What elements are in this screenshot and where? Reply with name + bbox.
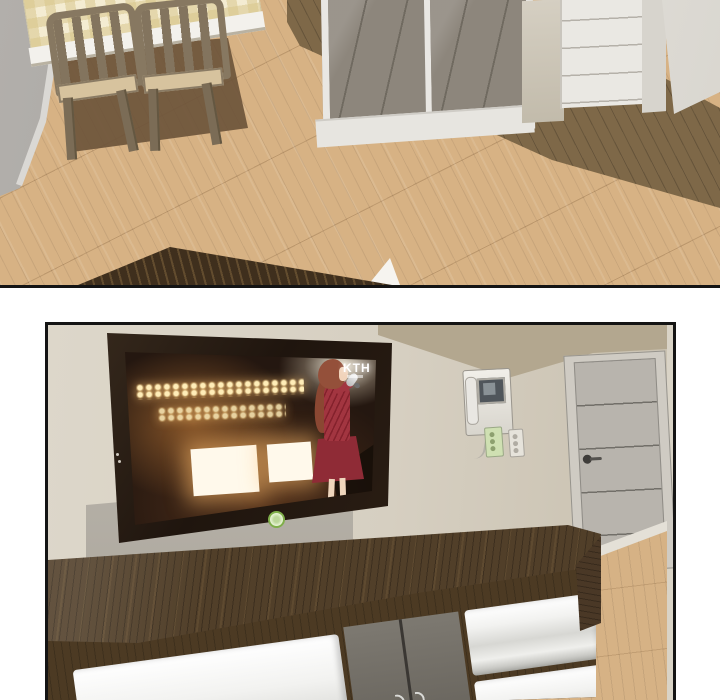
intercom-screen-glass bbox=[483, 383, 496, 396]
intercom-screen bbox=[477, 377, 506, 404]
chair-leg bbox=[116, 89, 139, 152]
tv-power-logo-icon bbox=[268, 511, 285, 528]
outlet-dot bbox=[513, 448, 518, 453]
bezel-screw bbox=[116, 453, 119, 456]
panel-living-room: KTH bbox=[45, 322, 676, 700]
stage-spotlights-row bbox=[158, 403, 286, 422]
dining-chair-right bbox=[128, 0, 229, 148]
chair-leg bbox=[148, 89, 160, 151]
bezel-screw bbox=[118, 460, 121, 463]
stage-screen-right bbox=[267, 442, 314, 483]
chair-leg bbox=[202, 82, 223, 145]
intercom-handset bbox=[465, 377, 479, 426]
light-switch-panel bbox=[484, 426, 504, 457]
console-white-flap-left bbox=[73, 634, 360, 700]
door-handle-bar bbox=[590, 457, 602, 461]
chair-leg bbox=[63, 97, 77, 160]
wall-pillar bbox=[522, 0, 564, 123]
wall-mounted-tv: KTH bbox=[100, 331, 410, 551]
outlet-panel bbox=[508, 429, 525, 458]
video-intercom bbox=[462, 368, 513, 436]
stage-spotlights-row bbox=[136, 378, 304, 400]
microphone-tip bbox=[353, 382, 361, 390]
switch-button bbox=[490, 446, 495, 451]
outlet-dot bbox=[513, 441, 518, 446]
cabinet-handle bbox=[415, 691, 427, 700]
broadcast-logo: KTH bbox=[343, 361, 371, 375]
switch-button bbox=[490, 439, 495, 444]
white-paneled-door bbox=[560, 0, 648, 108]
console-center-cabinet bbox=[343, 611, 479, 700]
broadcast-logo-subtext bbox=[347, 375, 363, 378]
panel-dining-area bbox=[0, 0, 720, 288]
outlet-dot bbox=[512, 434, 517, 439]
comic-page: KTH bbox=[0, 0, 720, 700]
cabinet-handle bbox=[395, 694, 407, 700]
switch-button bbox=[489, 432, 494, 437]
cabinet-door-gap bbox=[399, 619, 423, 700]
door-frame-strip bbox=[642, 0, 666, 113]
stage-screen-left bbox=[190, 445, 259, 496]
